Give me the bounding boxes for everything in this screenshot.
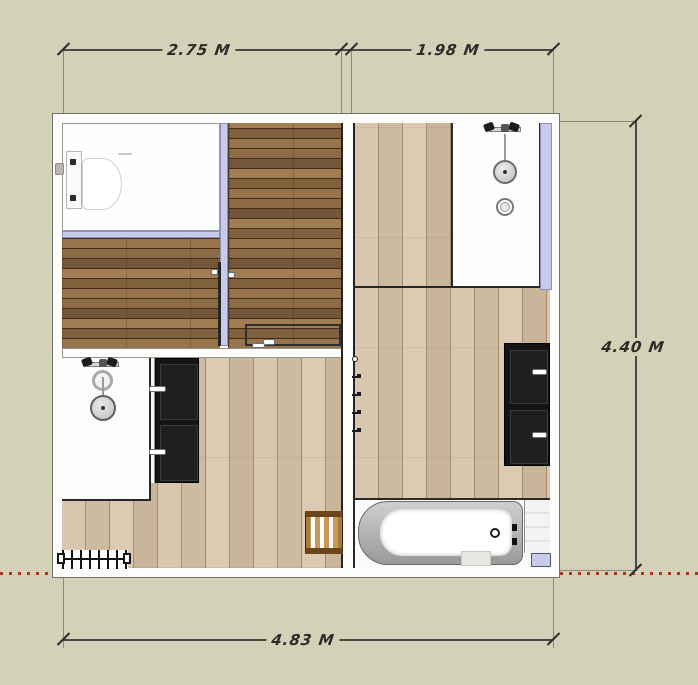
- radiator-end-cap: [57, 553, 65, 564]
- door-panel[interactable]: [218, 262, 221, 346]
- extension-line: [63, 49, 64, 113]
- bathtub-step: [461, 551, 491, 566]
- extension-line: [351, 49, 352, 113]
- cabinet-handle[interactable]: [149, 386, 166, 392]
- cabinet-handle[interactable]: [532, 432, 547, 438]
- radiator-rail: [60, 558, 130, 560]
- wall-middle-horizontal: [62, 348, 345, 358]
- flush-knob[interactable]: [55, 163, 64, 175]
- floor-plan-canvas: 2.75 M 1.98 M 4.40 M 4.83 M: [0, 0, 698, 685]
- dimension-label-right[interactable]: 4.40 M: [595, 338, 671, 356]
- door-handle[interactable]: [252, 343, 265, 348]
- cabinet-door: [510, 350, 548, 404]
- toilet-fitting: [70, 159, 76, 165]
- towel-hook[interactable]: [352, 356, 358, 362]
- extension-line: [560, 121, 637, 122]
- shower-mixer-body: [99, 359, 107, 367]
- cabinet-bottom-left[interactable]: [155, 358, 199, 483]
- shower-head-center: [503, 170, 507, 174]
- shower-head-center: [101, 406, 105, 410]
- towel-hook-tip: [357, 410, 361, 414]
- towel-hook-tip: [357, 374, 361, 378]
- radiator-end-cap: [123, 553, 131, 564]
- bathtub-faucet: [512, 538, 517, 545]
- wooden-stool[interactable]: [305, 511, 343, 554]
- bathtub-drain: [490, 528, 500, 538]
- toilet-bowl[interactable]: [82, 158, 122, 210]
- side-shelf[interactable]: [524, 500, 550, 553]
- extension-line: [556, 570, 637, 571]
- red-guide-line-left: [0, 572, 52, 575]
- bathtub-faucet: [512, 524, 517, 531]
- room-divider-line: [355, 286, 540, 288]
- cabinet-handle[interactable]: [532, 369, 547, 375]
- door-handle[interactable]: [211, 269, 218, 275]
- extension-line: [341, 49, 342, 113]
- extension-line: [553, 49, 554, 113]
- shower-mixer-body: [501, 124, 509, 132]
- door-handle[interactable]: [228, 272, 235, 278]
- dimension-label-top-right[interactable]: 1.98 M: [410, 41, 486, 59]
- floor-dark-wood-lower: [62, 238, 220, 348]
- cabinet-handle[interactable]: [149, 449, 166, 455]
- toilet-fitting: [70, 195, 76, 201]
- wall-lavender-horizontal: [62, 231, 220, 238]
- toilet-mark: [118, 153, 132, 155]
- wall-lavender-vertical: [220, 123, 228, 346]
- shower-drain-inner: [500, 202, 510, 212]
- towel-hook-tip: [357, 392, 361, 396]
- cabinet-door: [160, 364, 198, 420]
- dimension-label-bottom[interactable]: 4.83 M: [265, 631, 341, 649]
- floor-dark-wood-right: [228, 123, 341, 348]
- wall-lavender-right: [540, 123, 552, 290]
- towel-hook-tip: [357, 428, 361, 432]
- dimension-label-top-left[interactable]: 2.75 M: [161, 41, 237, 59]
- cabinet-right[interactable]: [504, 343, 550, 466]
- wall-lavender-corner: [531, 553, 551, 567]
